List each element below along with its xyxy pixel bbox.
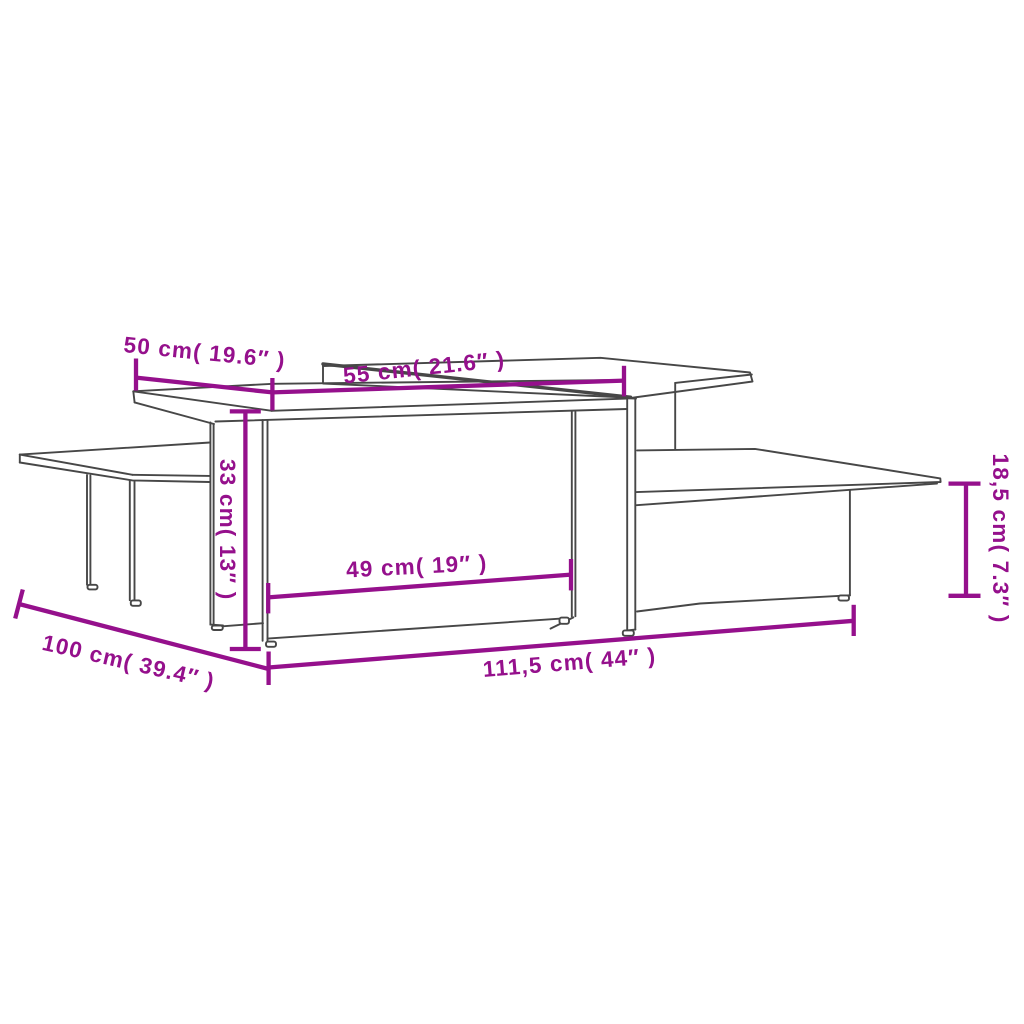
svg-text:33 cm( 13″ ): 33 cm( 13″ ) (215, 459, 240, 601)
svg-text:18,5 cm( 7.3″ ): 18,5 cm( 7.3″ ) (988, 454, 1013, 624)
